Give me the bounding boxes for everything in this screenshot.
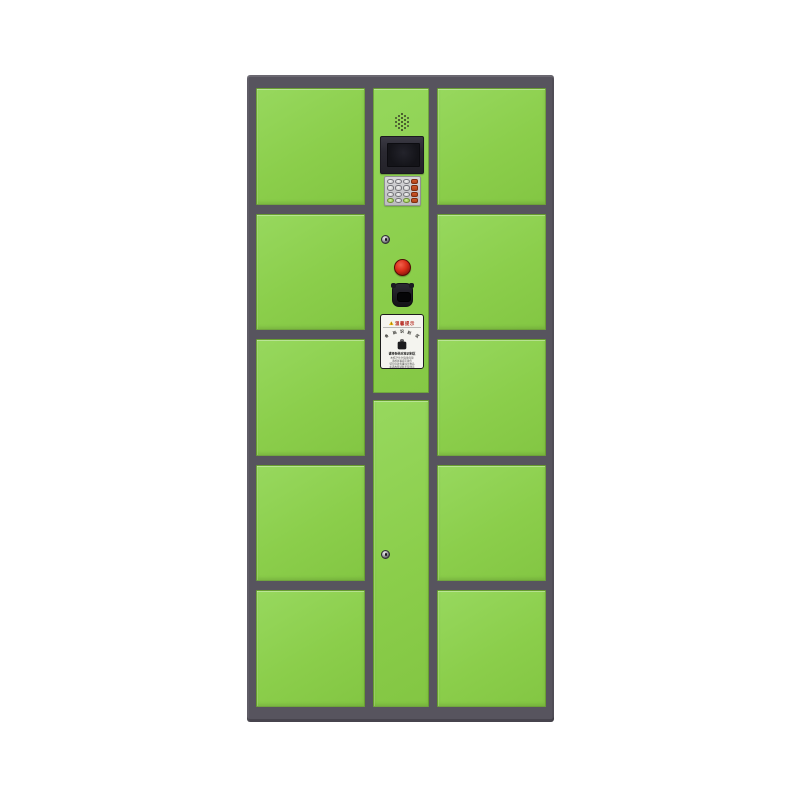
notice-arc-text: 条码识别区: [381, 328, 423, 339]
product-image: 温馨提示 条码识别区 请将条码对准识别区 本柜24小时自助存取 请按屏幕提示操作…: [0, 0, 800, 800]
keypad-key[interactable]: [395, 179, 402, 184]
scanner-window: [397, 292, 411, 302]
center-console-column: 温馨提示 条码识别区 请将条码对准识别区 本柜24小时自助存取 请按屏幕提示操作…: [373, 88, 429, 707]
red-call-button[interactable]: [394, 259, 411, 276]
keypad-key[interactable]: [395, 198, 402, 203]
keypad-key[interactable]: [395, 185, 402, 190]
keypad-key[interactable]: [411, 185, 418, 190]
keypad-key[interactable]: [403, 192, 410, 197]
locker-door[interactable]: [437, 590, 546, 707]
keypad-key[interactable]: [403, 179, 410, 184]
display-screen[interactable]: [380, 136, 424, 174]
locker-door[interactable]: [256, 339, 365, 456]
keypad-key[interactable]: [387, 198, 394, 203]
center-door-cam-lock[interactable]: [381, 550, 390, 559]
notice-arc-char: 码: [392, 329, 398, 336]
center-locker-door[interactable]: [373, 400, 429, 707]
control-panel: 温馨提示 条码识别区 请将条码对准识别区 本柜24小时自助存取 请按屏幕提示操作…: [373, 88, 429, 393]
locker-door[interactable]: [437, 214, 546, 331]
keypad-key[interactable]: [395, 192, 402, 197]
keypad-key[interactable]: [387, 192, 394, 197]
locker-door[interactable]: [437, 465, 546, 582]
keypad-key[interactable]: [387, 179, 394, 184]
screen-glass: [387, 143, 420, 167]
notice-arc-char: 识: [400, 329, 405, 334]
keypad-key[interactable]: [411, 179, 418, 184]
notice-label-content: 温馨提示 条码识别区 请将条码对准识别区 本柜24小时自助存取 请按屏幕提示操作…: [381, 320, 423, 369]
keypad-key[interactable]: [411, 198, 418, 203]
locker-door[interactable]: [256, 590, 365, 707]
speaker-grille-icon: [401, 121, 403, 123]
notice-title: 温馨提示: [395, 320, 415, 326]
locker-door[interactable]: [437, 339, 546, 456]
locker-cabinet: 温馨提示 条码识别区 请将条码对准识别区 本柜24小时自助存取 请按屏幕提示操作…: [247, 75, 554, 722]
keypad-key[interactable]: [403, 185, 410, 190]
locker-door[interactable]: [256, 214, 365, 331]
fine-print-line: 如遇故障请联系管理员: [383, 365, 420, 368]
notice-fine-print: 本柜24小时自助存取 请按屏幕提示操作 切勿存放贵重违禁物品 如遇故障请联系管理…: [383, 356, 420, 368]
right-door-column: [437, 88, 546, 707]
keypad-key[interactable]: [411, 192, 418, 197]
notice-header: 温馨提示: [383, 320, 421, 328]
keypad-key[interactable]: [387, 185, 394, 190]
keypad[interactable]: [384, 176, 421, 206]
parcel-bag-icon: [398, 342, 407, 350]
barcode-scanner: [392, 283, 413, 307]
notice-bold-line: 请将条码对准识别区: [381, 351, 423, 355]
locker-door[interactable]: [437, 88, 546, 205]
locker-door[interactable]: [256, 88, 365, 205]
panel-cam-lock[interactable]: [381, 235, 390, 244]
notice-arc-char: 条: [383, 332, 390, 339]
locker-door[interactable]: [256, 465, 365, 582]
left-door-column: [256, 88, 365, 707]
keypad-key[interactable]: [403, 198, 410, 203]
notice-label: 温馨提示 条码识别区 请将条码对准识别区 本柜24小时自助存取 请按屏幕提示操作…: [380, 314, 424, 369]
notice-arc-char: 别: [406, 329, 412, 336]
notice-arc-char: 区: [414, 332, 421, 339]
cabinet-interior: 温馨提示 条码识别区 请将条码对准识别区 本柜24小时自助存取 请按屏幕提示操作…: [256, 88, 546, 707]
warning-triangle-icon: [389, 321, 394, 325]
